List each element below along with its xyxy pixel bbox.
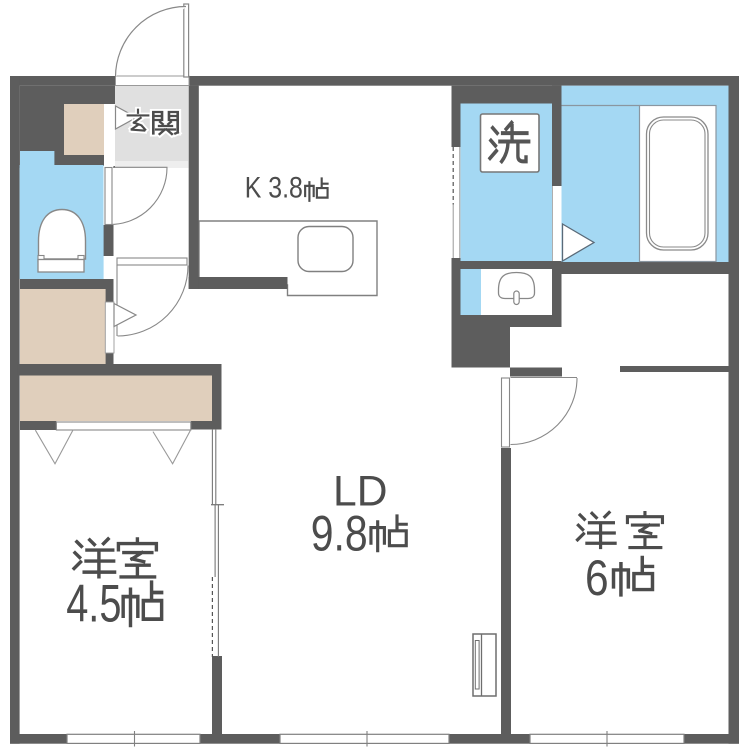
svg-text:6: 6 <box>585 550 609 606</box>
svg-text:K 3.8: K 3.8 <box>245 170 303 204</box>
svg-text:4.5: 4.5 <box>66 574 121 633</box>
svg-text:9.8: 9.8 <box>311 506 368 562</box>
